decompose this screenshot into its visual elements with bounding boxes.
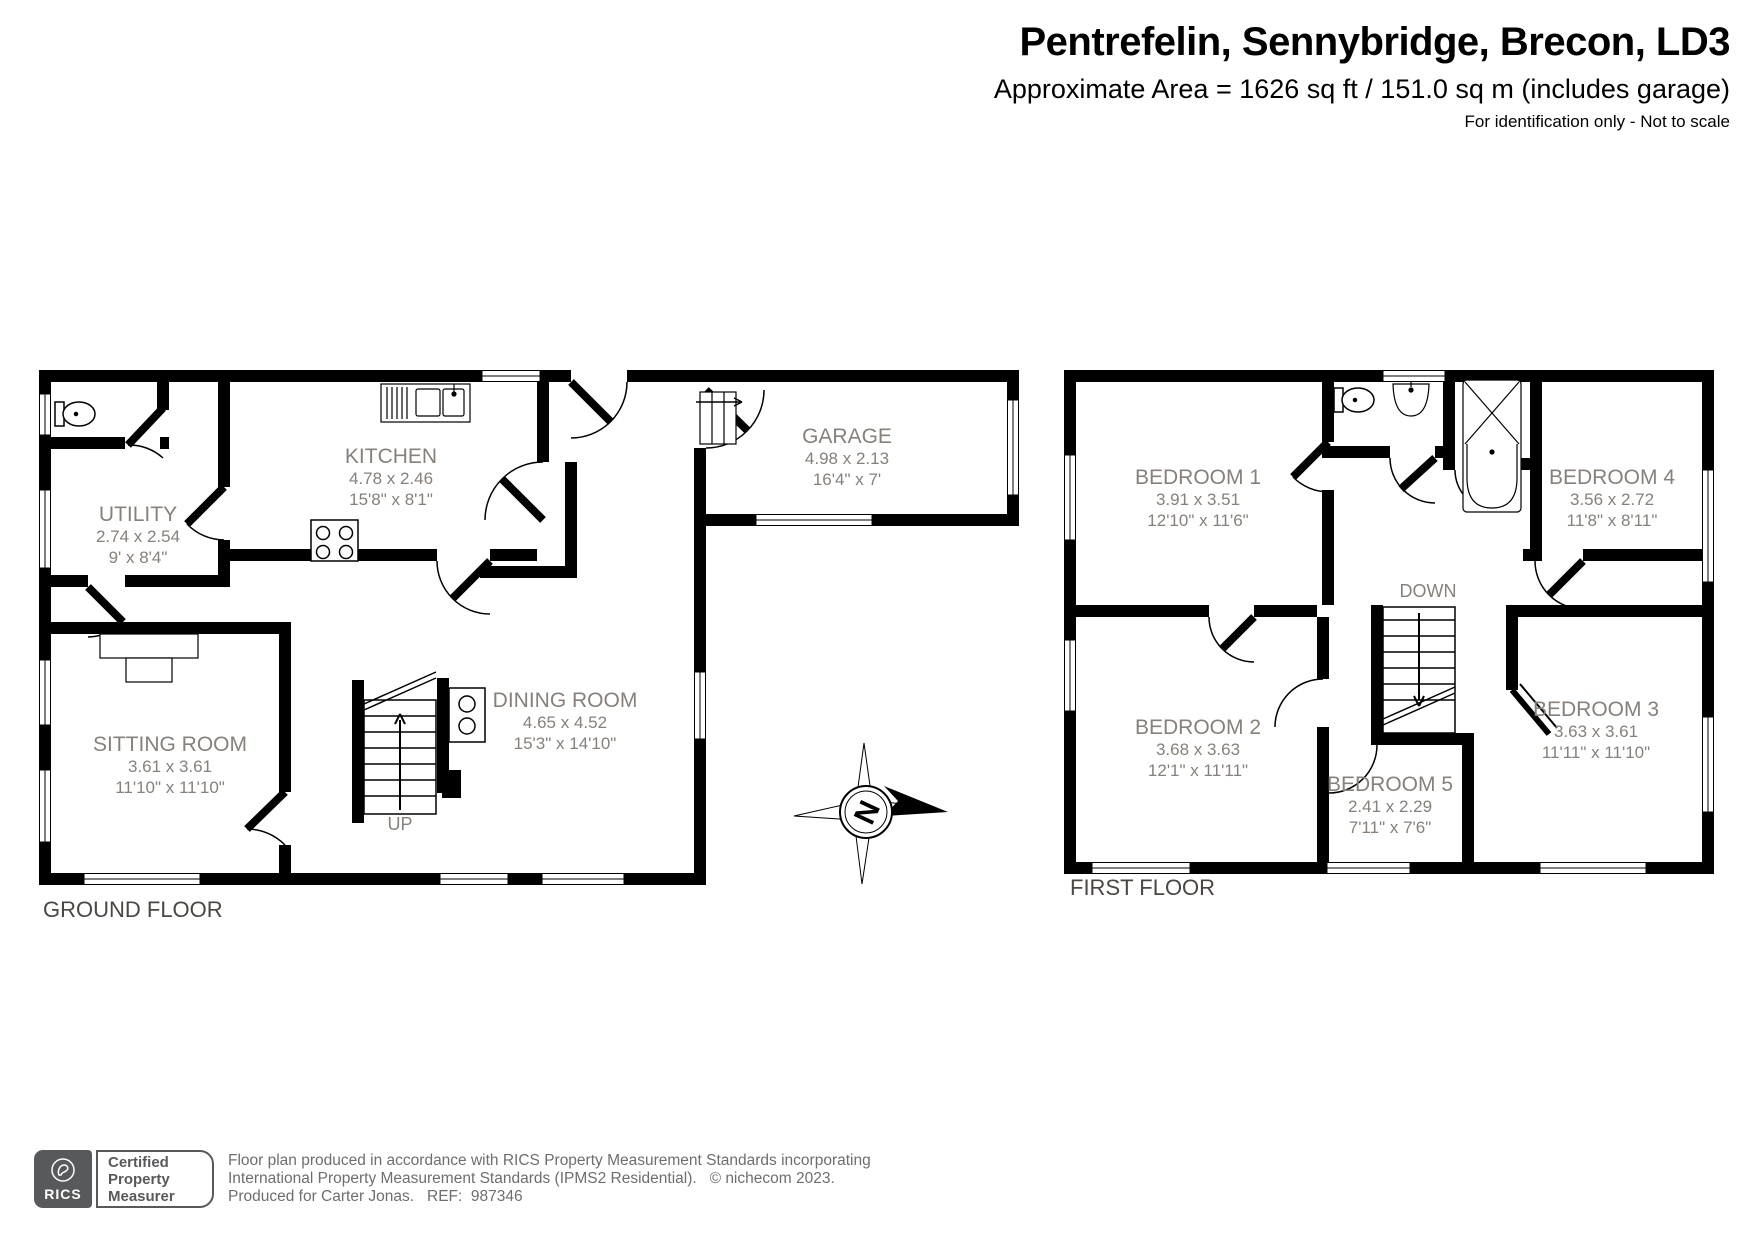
room-name: UTILITY (96, 503, 180, 527)
staircase-down (1383, 607, 1455, 733)
door-arc (1275, 679, 1323, 727)
area-summary: Approximate Area = 1626 sq ft / 151.0 sq… (994, 74, 1730, 105)
door-arc (1455, 470, 1495, 510)
window (1383, 371, 1445, 382)
kitchen-sink-icon (381, 384, 470, 422)
window (1092, 863, 1190, 874)
window (40, 490, 51, 568)
door-arc (571, 382, 627, 438)
room-label-bedroom-4: BEDROOM 4 3.56 x 2.72 11'8" x 8'11" (1549, 466, 1675, 532)
window (1065, 640, 1076, 711)
door-arc (1535, 561, 1583, 609)
room-label-garage: GARAGE 4.98 x 2.13 16'4" x 7' (802, 425, 892, 491)
room-dim-metric: 3.56 x 2.72 (1549, 490, 1675, 511)
window (1008, 400, 1019, 495)
window (40, 770, 51, 842)
door-arc (437, 561, 490, 614)
room-dim-metric: 4.78 x 2.46 (345, 469, 437, 490)
footer-line-1: Floor plan produced in accordance with R… (228, 1152, 871, 1170)
header: Pentrefelin, Sennybridge, Brecon, LD3 Ap… (994, 20, 1730, 132)
window (756, 515, 872, 526)
room-label-sitting-room: SITTING ROOM 3.61 x 3.61 11'10" x 11'10" (93, 733, 247, 799)
certified-property-measurer-badge: Certified Property Measurer (96, 1150, 214, 1208)
room-name: SITTING ROOM (93, 733, 247, 757)
room-dim-metric: 4.98 x 2.13 (802, 449, 892, 470)
first-floor-doors (1209, 442, 1583, 793)
room-dim-metric: 3.63 x 3.61 (1533, 722, 1659, 743)
window (40, 660, 51, 725)
property-title: Pentrefelin, Sennybridge, Brecon, LD3 (994, 20, 1730, 65)
compass-rose-icon: N (794, 743, 948, 884)
room-name: BEDROOM 5 (1327, 773, 1453, 797)
sink-icon (1393, 382, 1429, 416)
room-dim-imperial: 9' x 8'4" (96, 548, 180, 569)
room-name: BEDROOM 3 (1533, 698, 1659, 722)
window (1065, 455, 1076, 540)
footer-line-3: Produced for Carter Jonas. REF: 987346 (228, 1188, 871, 1206)
window (1703, 717, 1714, 812)
window (1540, 863, 1646, 874)
room-dim-metric: 3.91 x 3.51 (1135, 490, 1261, 511)
room-dim-metric: 2.74 x 2.54 (96, 527, 180, 548)
first-floor-fixtures (1334, 380, 1521, 512)
window (84, 874, 200, 885)
garage-steps-icon (696, 392, 742, 444)
stairs-up-label: UP (387, 814, 412, 835)
room-dim-imperial: 15'3" x 14'10" (493, 734, 638, 755)
door-arc (128, 408, 163, 458)
door-arc (187, 487, 224, 540)
room-dim-imperial: 16'4" x 7' (802, 470, 892, 491)
scale-disclaimer: For identification only - Not to scale (994, 112, 1730, 132)
hob-icon (311, 520, 358, 561)
compass-north-label: N (846, 795, 885, 829)
ground-floor-label: GROUND FLOOR (43, 897, 223, 923)
window (542, 874, 624, 885)
badge-line: Measurer (108, 1188, 212, 1205)
oven-icon (449, 688, 485, 742)
door-arc (247, 792, 285, 845)
room-dim-imperial: 11'8" x 8'11" (1549, 511, 1675, 532)
window (40, 394, 51, 435)
room-name: BEDROOM 2 (1135, 716, 1261, 740)
room-dim-imperial: 11'10" x 11'10" (93, 778, 247, 799)
room-name: GARAGE (802, 425, 892, 449)
room-dim-imperial: 15'8" x 8'1" (345, 490, 437, 511)
rics-wordmark: RICS (44, 1186, 81, 1202)
room-name: KITCHEN (345, 445, 437, 469)
room-dim-metric: 2.41 x 2.29 (1327, 797, 1453, 818)
door-arc (485, 462, 543, 520)
room-dim-imperial: 12'10" x 11'6" (1135, 511, 1261, 532)
window (1327, 863, 1410, 874)
rics-lion-icon (48, 1157, 78, 1185)
window (440, 874, 508, 885)
room-dim-imperial: 11'11" x 11'10" (1533, 743, 1659, 764)
badge-line: Property (108, 1171, 212, 1188)
door-arc (706, 390, 764, 448)
window (1703, 470, 1714, 582)
door-arc (88, 587, 123, 637)
room-name: BEDROOM 1 (1135, 466, 1261, 490)
room-label-bedroom-5: BEDROOM 5 2.41 x 2.29 7'11" x 7'6" (1327, 773, 1453, 839)
stairs-down-label: DOWN (1400, 581, 1457, 602)
toilet-icon (55, 402, 95, 426)
room-label-bedroom-3: BEDROOM 3 3.63 x 3.61 11'11" x 11'10" (1533, 698, 1659, 764)
room-dim-imperial: 12'1" x 11'11" (1135, 761, 1261, 782)
room-dim-metric: 4.65 x 4.52 (493, 713, 638, 734)
room-dim-metric: 3.68 x 3.63 (1135, 740, 1261, 761)
badge-line: Certified (108, 1154, 212, 1171)
room-label-dining-room: DINING ROOM 4.65 x 4.52 15'3" x 14'10" (493, 689, 638, 755)
room-name: DINING ROOM (493, 689, 638, 713)
room-label-kitchen: KITCHEN 4.78 x 2.46 15'8" x 8'1" (345, 445, 437, 511)
room-label-bedroom-1: BEDROOM 1 3.91 x 3.51 12'10" x 11'6" (1135, 466, 1261, 532)
door-arc (1293, 442, 1328, 492)
fireplace-icon (100, 634, 198, 682)
window (695, 672, 706, 739)
first-floor-label: FIRST FLOOR (1070, 875, 1215, 901)
staircase-up (364, 672, 436, 814)
room-label-utility: UTILITY 2.74 x 2.54 9' x 8'4" (96, 503, 180, 569)
rics-logo: RICS (34, 1150, 92, 1208)
window (482, 371, 540, 382)
door-arc (1209, 617, 1254, 662)
footer-line-2: International Property Measurement Stand… (228, 1170, 871, 1188)
footer: RICS Certified Property Measurer Floor p… (34, 1150, 871, 1208)
room-name: BEDROOM 4 (1549, 466, 1675, 490)
door-arc (1390, 458, 1435, 503)
room-dim-imperial: 7'11" x 7'6" (1327, 818, 1453, 839)
floor-plan-graphics: N (0, 0, 1755, 1241)
bathtub-icon (1463, 380, 1521, 512)
room-label-bedroom-2: BEDROOM 2 3.68 x 3.63 12'1" x 11'11" (1135, 716, 1261, 782)
toilet-icon (1334, 388, 1374, 412)
room-dim-metric: 3.61 x 3.61 (93, 757, 247, 778)
footer-disclaimer-text: Floor plan produced in accordance with R… (228, 1150, 871, 1208)
floorplan-page: Pentrefelin, Sennybridge, Brecon, LD3 Ap… (0, 0, 1755, 1241)
